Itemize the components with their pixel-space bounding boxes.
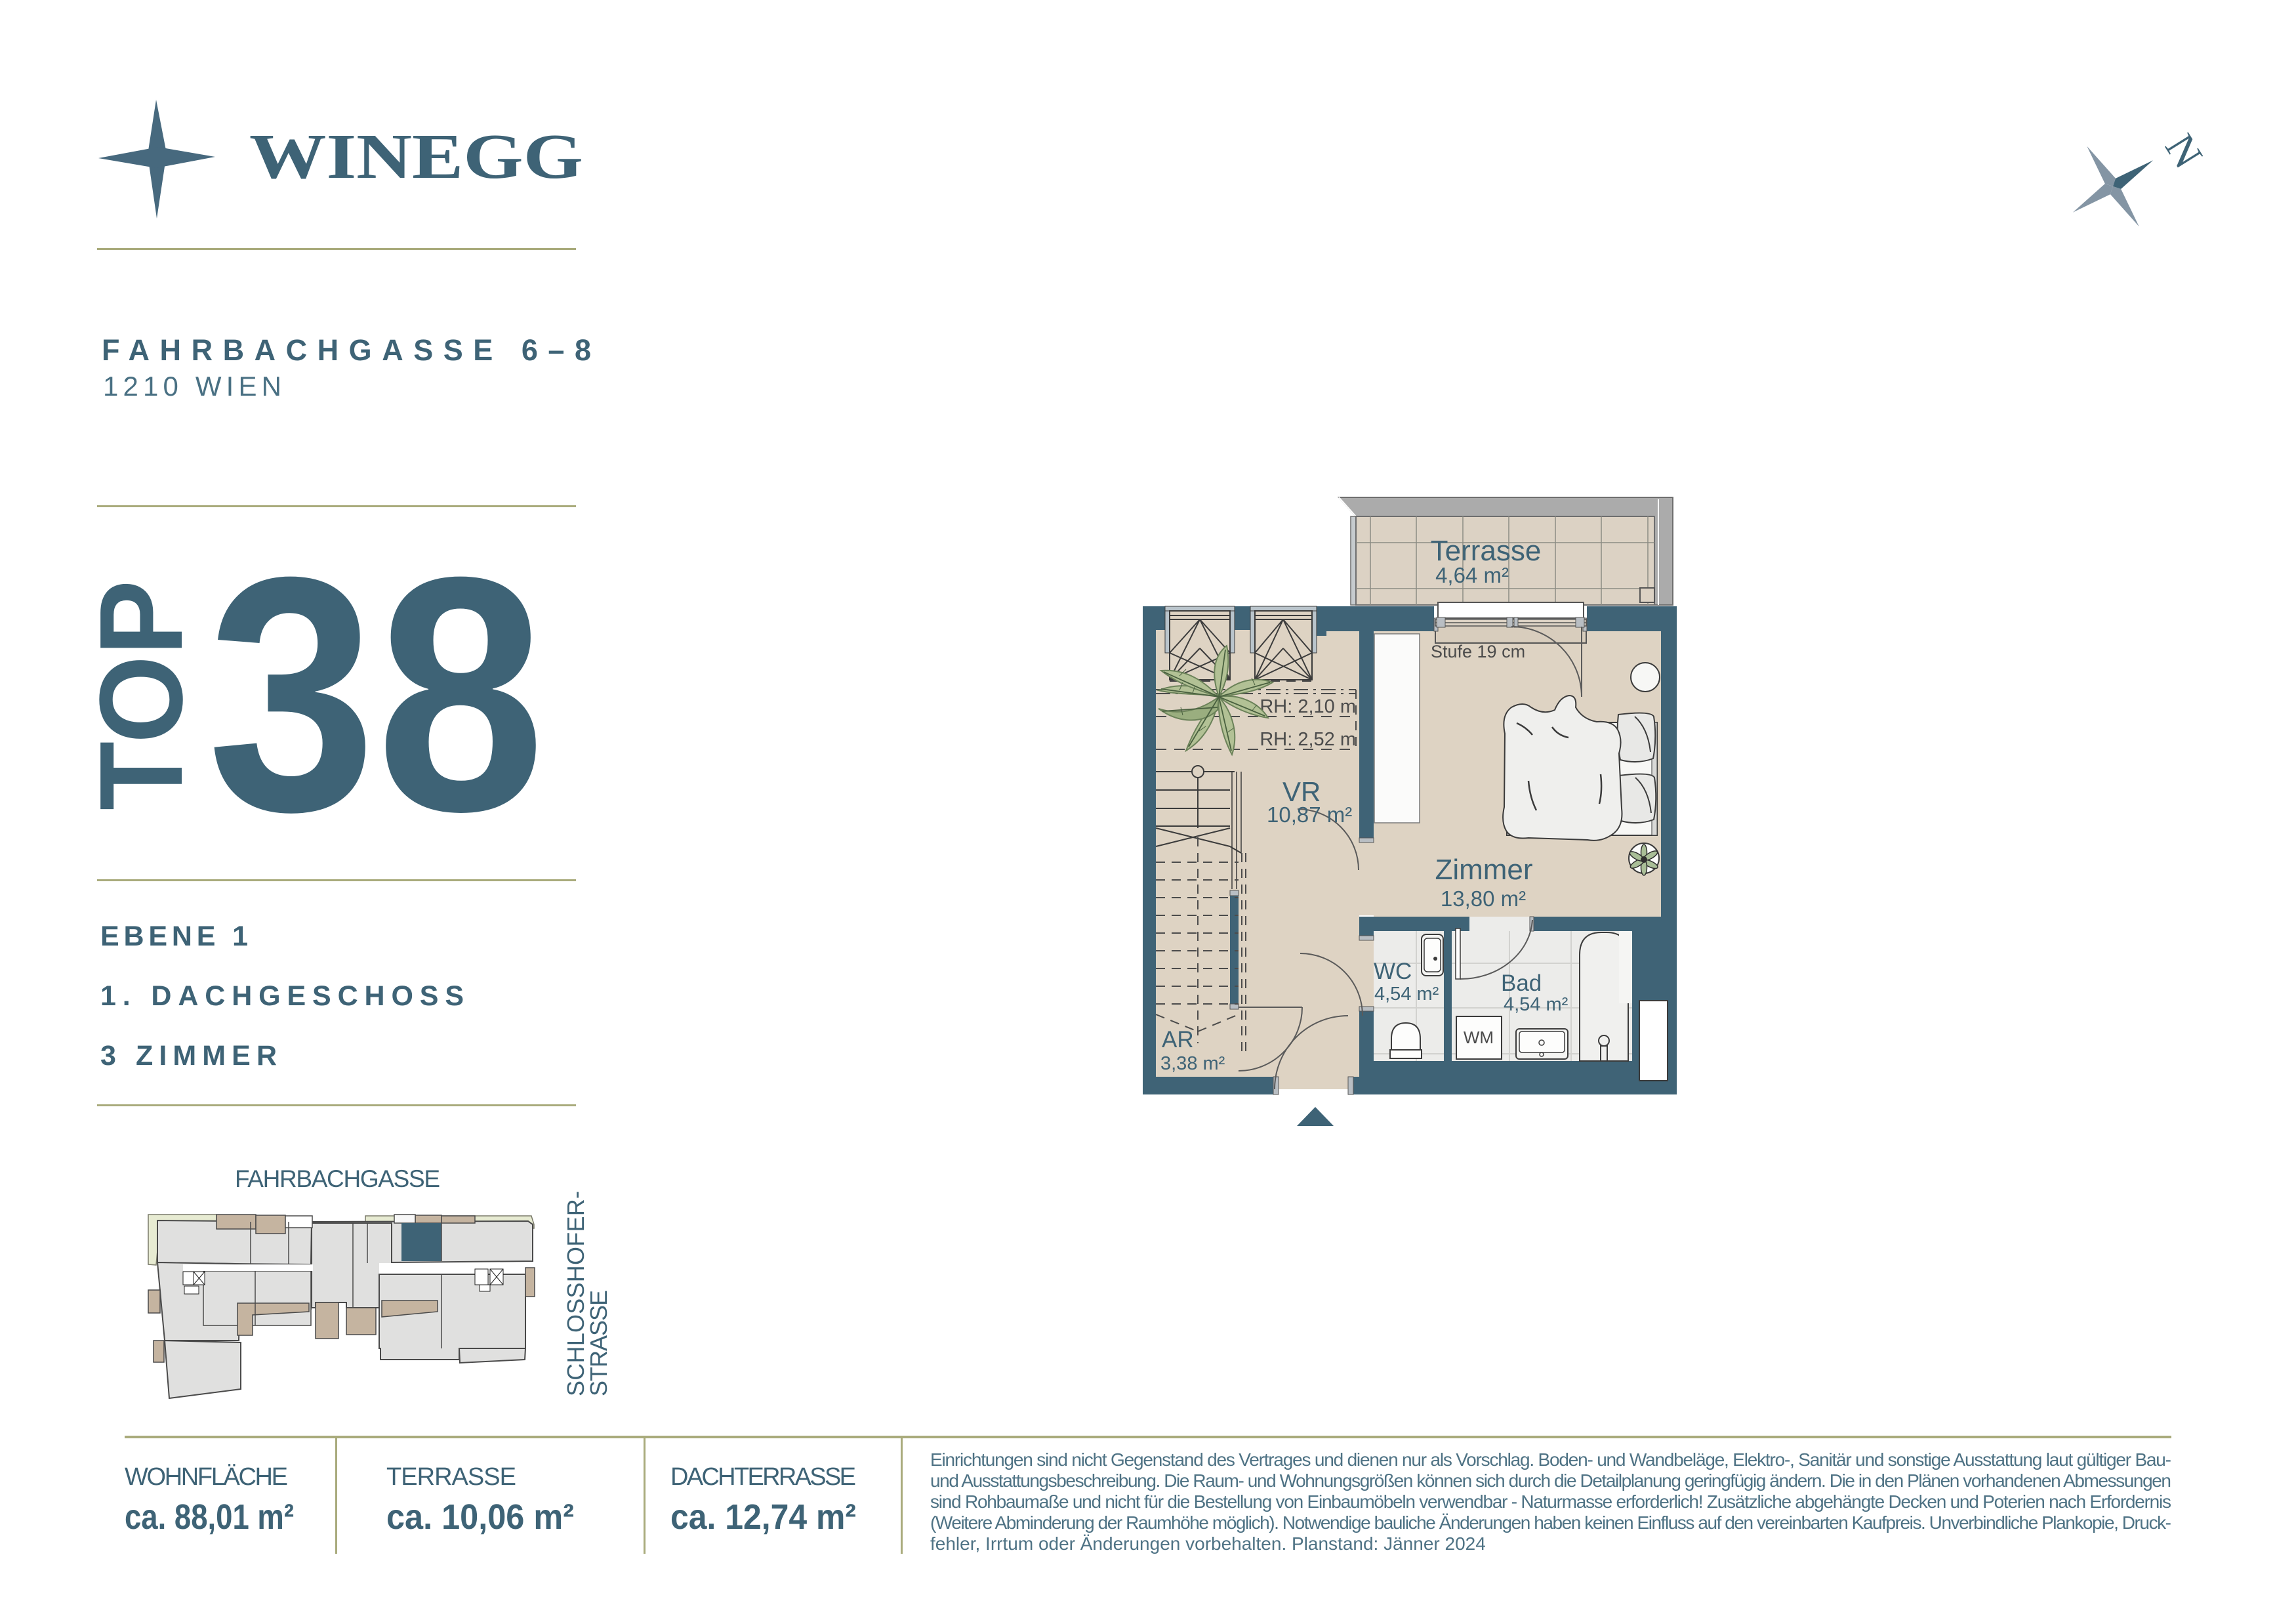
svg-text:AR: AR xyxy=(1162,1027,1194,1052)
svg-text:WOHNFLÄCHE: WOHNFLÄCHE xyxy=(125,1463,288,1491)
svg-text:13,80 m²: 13,80 m² xyxy=(1441,886,1526,911)
svg-text:WC: WC xyxy=(1374,959,1412,984)
svg-text:3 ZIMMER: 3 ZIMMER xyxy=(100,1040,277,1072)
svg-text:TOP: TOP xyxy=(75,580,207,810)
svg-text:RH: 2,52 m: RH: 2,52 m xyxy=(1260,729,1356,750)
svg-text:Bad: Bad xyxy=(1501,970,1542,996)
svg-text:Einrichtungen sind nicht Gegen: Einrichtungen sind nicht Gegenstand des … xyxy=(930,1449,2171,1470)
svg-text:und Ausstattungsbeschreibung.: und Ausstattungsbeschreibung. Die Raum- … xyxy=(930,1470,2171,1491)
svg-text:WINEGG: WINEGG xyxy=(249,121,583,192)
svg-text:38: 38 xyxy=(207,507,545,881)
svg-text:sind Rohbaumaße und nicht für: sind Rohbaumaße und nicht für die Bestel… xyxy=(930,1491,2171,1512)
svg-text:4,54 m²: 4,54 m² xyxy=(1374,984,1439,1005)
svg-text:4,54 m²: 4,54 m² xyxy=(1504,994,1568,1015)
svg-text:Zimmer: Zimmer xyxy=(1435,854,1532,886)
svg-text:TERRASSE: TERRASSE xyxy=(386,1463,516,1491)
svg-text:4,64 m²: 4,64 m² xyxy=(1435,563,1509,587)
svg-text:ca. 12,74 m²: ca. 12,74 m² xyxy=(670,1497,856,1537)
svg-text:(Weitere Abminderung der Raumh: (Weitere Abminderung der Raumhöhe möglic… xyxy=(930,1512,2171,1533)
svg-text:ca. 10,06 m²: ca. 10,06 m² xyxy=(386,1497,574,1537)
svg-text:STRASSE: STRASSE xyxy=(585,1290,612,1396)
svg-text:fehler, Irrtum oder Änderungen: fehler, Irrtum oder Änderungen vorbehalt… xyxy=(930,1533,1486,1554)
svg-text:DACHTERRASSE: DACHTERRASSE xyxy=(670,1463,856,1491)
svg-text:Terrasse: Terrasse xyxy=(1431,535,1542,567)
svg-text:FAHRBACHGASSE: FAHRBACHGASSE xyxy=(235,1165,440,1192)
svg-text:3,38 m²: 3,38 m² xyxy=(1160,1053,1225,1074)
svg-text:RH: 2,10 m: RH: 2,10 m xyxy=(1260,696,1356,717)
svg-text:Stufe 19 cm: Stufe 19 cm xyxy=(1431,642,1525,661)
svg-text:ca. 88,01 m²: ca. 88,01 m² xyxy=(125,1497,294,1537)
svg-text:WM: WM xyxy=(1464,1028,1494,1047)
svg-text:10,87 m²: 10,87 m² xyxy=(1267,802,1352,827)
